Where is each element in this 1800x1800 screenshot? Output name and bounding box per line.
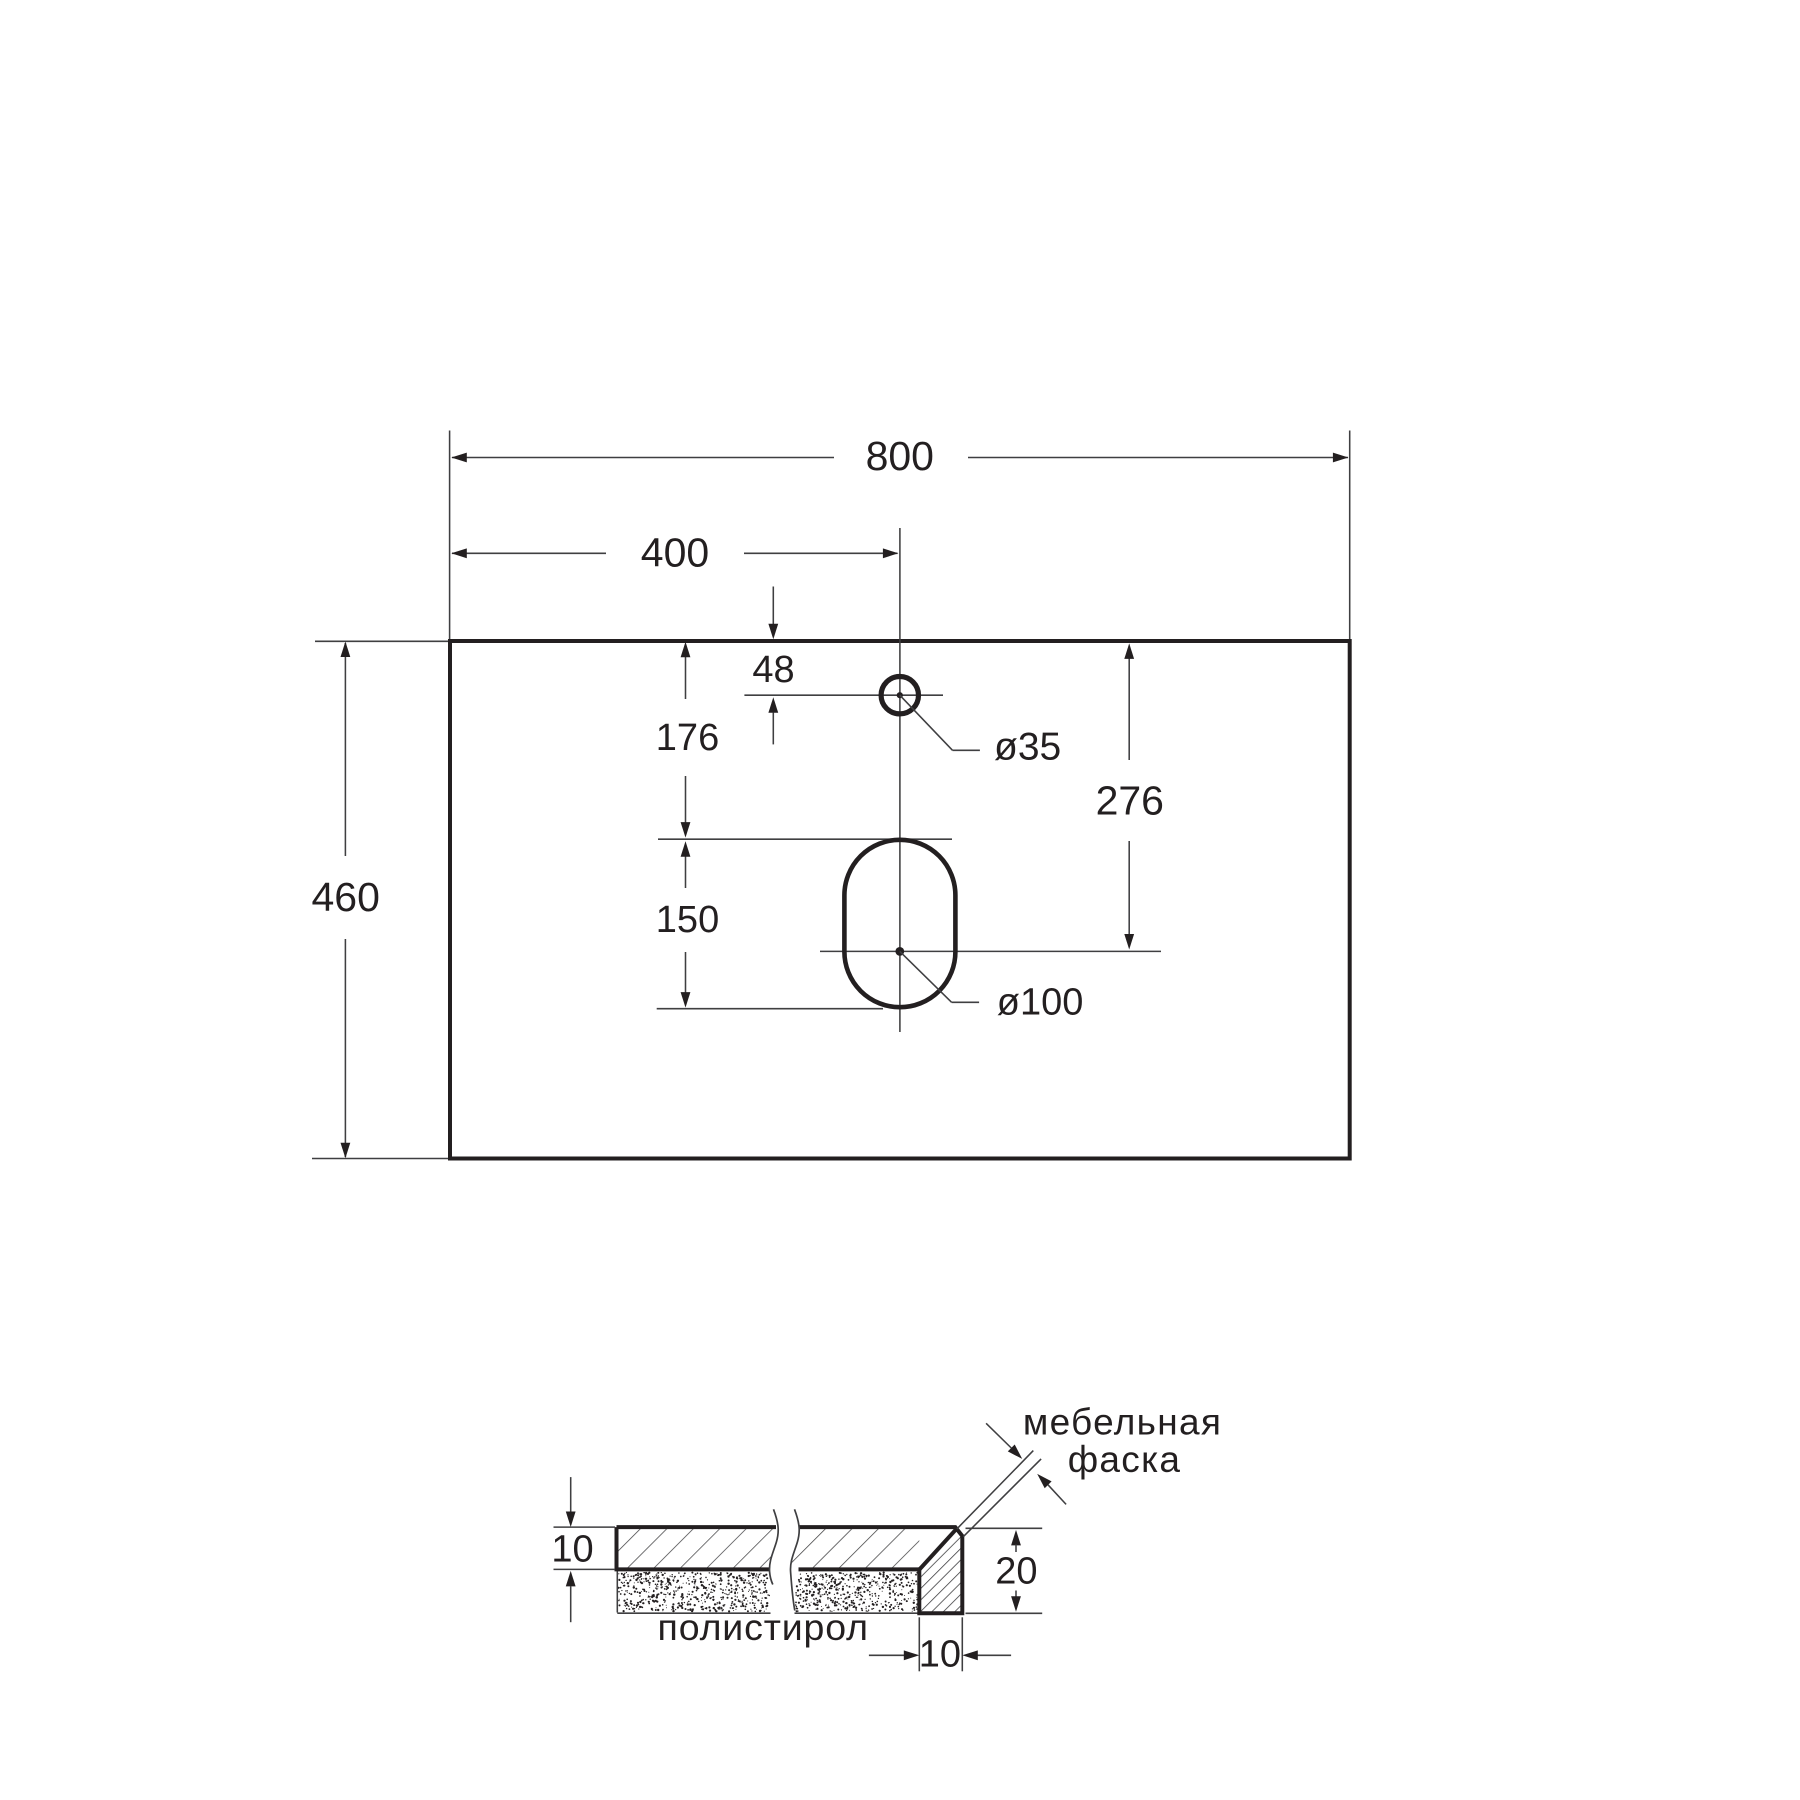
- svg-text:460: 460: [311, 874, 379, 920]
- svg-text:фаска: фаска: [1068, 1439, 1182, 1480]
- svg-text:150: 150: [656, 899, 719, 941]
- svg-text:20: 20: [995, 1551, 1037, 1593]
- svg-text:800: 800: [866, 433, 934, 479]
- svg-text:400: 400: [641, 529, 709, 575]
- svg-text:10: 10: [551, 1529, 593, 1571]
- svg-text:176: 176: [656, 717, 719, 759]
- svg-text:276: 276: [1096, 778, 1164, 824]
- svg-text:мебельная: мебельная: [1023, 1401, 1222, 1442]
- svg-text:ø35: ø35: [994, 726, 1061, 769]
- svg-text:10: 10: [919, 1634, 961, 1676]
- svg-text:48: 48: [752, 649, 794, 691]
- svg-text:ø100: ø100: [997, 982, 1084, 1024]
- svg-text:полистирол: полистирол: [658, 1606, 869, 1648]
